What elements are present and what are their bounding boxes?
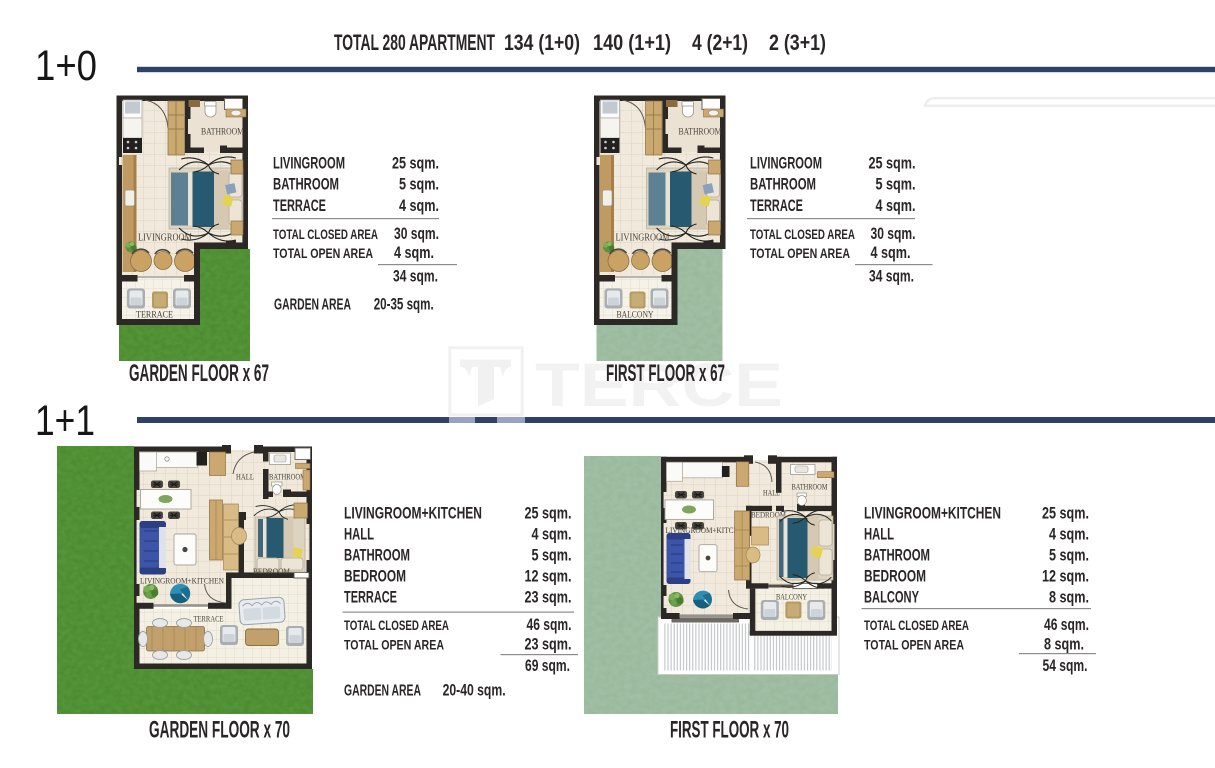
svg-text:1+1: 1+1 [35,397,95,445]
svg-text:30 sqm.: 30 sqm. [871,224,916,243]
svg-text:4 sqm.: 4 sqm. [871,243,911,262]
svg-text:TERRACE: TERRACE [136,311,173,321]
svg-text:4 (2+1): 4 (2+1) [692,30,748,55]
svg-text:GARDEN FLOOR x 67: GARDEN FLOOR x 67 [129,360,269,387]
svg-text:BALCONY: BALCONY [617,311,654,321]
svg-text:HALL: HALL [344,524,374,543]
svg-text:4 sqm.: 4 sqm. [876,196,916,215]
svg-text:TOTAL 280 APARTMENT: TOTAL 280 APARTMENT [334,30,495,55]
svg-text:69 sqm.: 69 sqm. [525,656,570,675]
svg-text:HALL: HALL [864,524,894,543]
svg-text:12 sqm.: 12 sqm. [525,566,572,585]
svg-text:TOTAL CLOSED AREA: TOTAL CLOSED AREA [750,226,855,242]
svg-text:TERRACE: TERRACE [344,587,397,606]
svg-text:46 sqm.: 46 sqm. [527,615,572,634]
svg-text:30 sqm.: 30 sqm. [394,224,439,243]
svg-text:4 sqm.: 4 sqm. [532,524,572,543]
svg-text:TERRACE: TERRACE [750,196,803,215]
svg-text:46 sqm.: 46 sqm. [1044,615,1089,634]
svg-text:34 sqm.: 34 sqm. [869,266,914,285]
svg-text:BATHROOM: BATHROOM [344,545,410,564]
svg-text:TOTAL OPEN AREA: TOTAL OPEN AREA [344,637,444,653]
svg-text:5 sqm.: 5 sqm. [532,545,572,564]
svg-text:20-40 sqm.: 20-40 sqm. [443,681,506,700]
svg-text:GARDEN FLOOR x 70: GARDEN FLOOR x 70 [149,717,290,744]
svg-text:GARDEN AREA: GARDEN AREA [274,297,351,314]
svg-text:BATHROOM: BATHROOM [269,472,306,482]
svg-text:23 sqm.: 23 sqm. [525,635,572,654]
svg-text:BATHROOM: BATHROOM [201,128,244,138]
svg-text:4 sqm.: 4 sqm. [1049,524,1089,543]
svg-text:5 sqm.: 5 sqm. [876,175,916,194]
svg-text:TOTAL CLOSED AREA: TOTAL CLOSED AREA [344,617,449,633]
svg-text:134 (1+0): 134 (1+0) [504,30,580,55]
svg-text:2 (3+1): 2 (3+1) [769,30,826,55]
svg-text:LIVINGROOM: LIVINGROOM [750,154,822,173]
svg-text:BATHROOM: BATHROOM [273,175,339,194]
svg-text:25 sqm.: 25 sqm. [392,154,439,173]
svg-text:1+0: 1+0 [35,42,97,90]
svg-text:TOTAL CLOSED AREA: TOTAL CLOSED AREA [864,617,969,633]
svg-text:20-35 sqm.: 20-35 sqm. [374,295,434,314]
svg-text:GARDEN AREA: GARDEN AREA [344,683,421,700]
svg-text:TOTAL OPEN AREA: TOTAL OPEN AREA [750,245,850,261]
svg-text:25 sqm.: 25 sqm. [1042,503,1089,522]
svg-text:4 sqm.: 4 sqm. [394,243,434,262]
svg-text:LIVINGROOM+KITCHEN: LIVINGROOM+KITCHEN [344,503,482,522]
svg-text:BALCONY: BALCONY [776,592,807,602]
svg-text:BALCONY: BALCONY [864,587,919,606]
svg-text:TERRACE: TERRACE [273,196,326,215]
svg-text:25 sqm.: 25 sqm. [869,154,916,173]
svg-text:140 (1+1): 140 (1+1) [593,30,671,55]
svg-text:TERRACE: TERRACE [194,614,224,624]
svg-text:5 sqm.: 5 sqm. [399,175,439,194]
svg-text:BEDROOM: BEDROOM [253,566,290,576]
svg-text:FIRST FLOOR x 67: FIRST FLOOR x 67 [606,360,725,387]
svg-text:4 sqm.: 4 sqm. [399,196,439,215]
svg-text:LIVINGROOM: LIVINGROOM [273,154,345,173]
svg-text:5 sqm.: 5 sqm. [1049,545,1089,564]
svg-text:LIVINGROOM: LIVINGROOM [138,233,193,244]
svg-text:BEDROOM: BEDROOM [344,566,406,585]
svg-text:HALL: HALL [236,472,254,482]
svg-text:BEDROOM: BEDROOM [864,566,926,585]
svg-text:54 sqm.: 54 sqm. [1043,656,1088,675]
svg-text:8 sqm.: 8 sqm. [1044,635,1084,654]
svg-text:TOTAL CLOSED AREA: TOTAL CLOSED AREA [273,226,378,242]
svg-text:BATHROOM: BATHROOM [792,482,828,492]
svg-text:HALL: HALL [763,488,780,498]
svg-text:TOTAL OPEN AREA: TOTAL OPEN AREA [273,245,373,261]
svg-text:FIRST FLOOR x 70: FIRST FLOOR x 70 [670,717,789,744]
svg-text:25 sqm.: 25 sqm. [525,503,572,522]
svg-text:12 sqm.: 12 sqm. [1042,566,1089,585]
svg-text:BATHROOM: BATHROOM [864,545,930,564]
svg-text:LIVINGROOM+KITCHEN: LIVINGROOM+KITCHEN [864,503,1001,522]
svg-text:34 sqm.: 34 sqm. [393,266,438,285]
svg-text:BATHROOM: BATHROOM [750,175,816,194]
svg-text:TOTAL OPEN AREA: TOTAL OPEN AREA [864,637,964,653]
svg-text:23 sqm.: 23 sqm. [525,587,572,606]
svg-text:8 sqm.: 8 sqm. [1049,587,1089,606]
